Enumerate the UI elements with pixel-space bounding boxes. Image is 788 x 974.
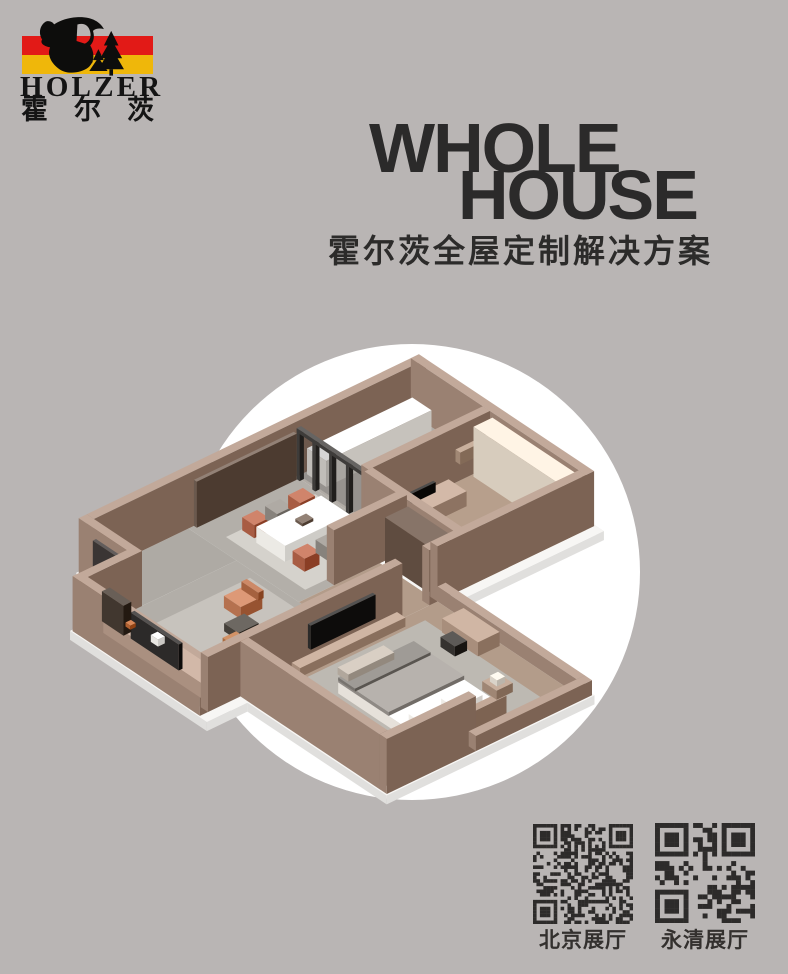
subtitle-cn: 霍尔茨全屋定制解决方案 [328,234,713,269]
poster-background: HOLZER 霍尔茨 WHOLE HOUSE 霍尔茨全屋定制解决方案 北京展厅 … [0,0,788,974]
qr-code-yongqing [655,823,755,923]
qr-label-beijing: 北京展厅 [533,929,633,952]
qr-label-yongqing: 永清展厅 [655,929,755,952]
brand-name-cn: 霍尔茨 [21,97,180,124]
title-line-2: HOUSE [458,160,697,230]
qr-code-beijing [533,824,633,924]
